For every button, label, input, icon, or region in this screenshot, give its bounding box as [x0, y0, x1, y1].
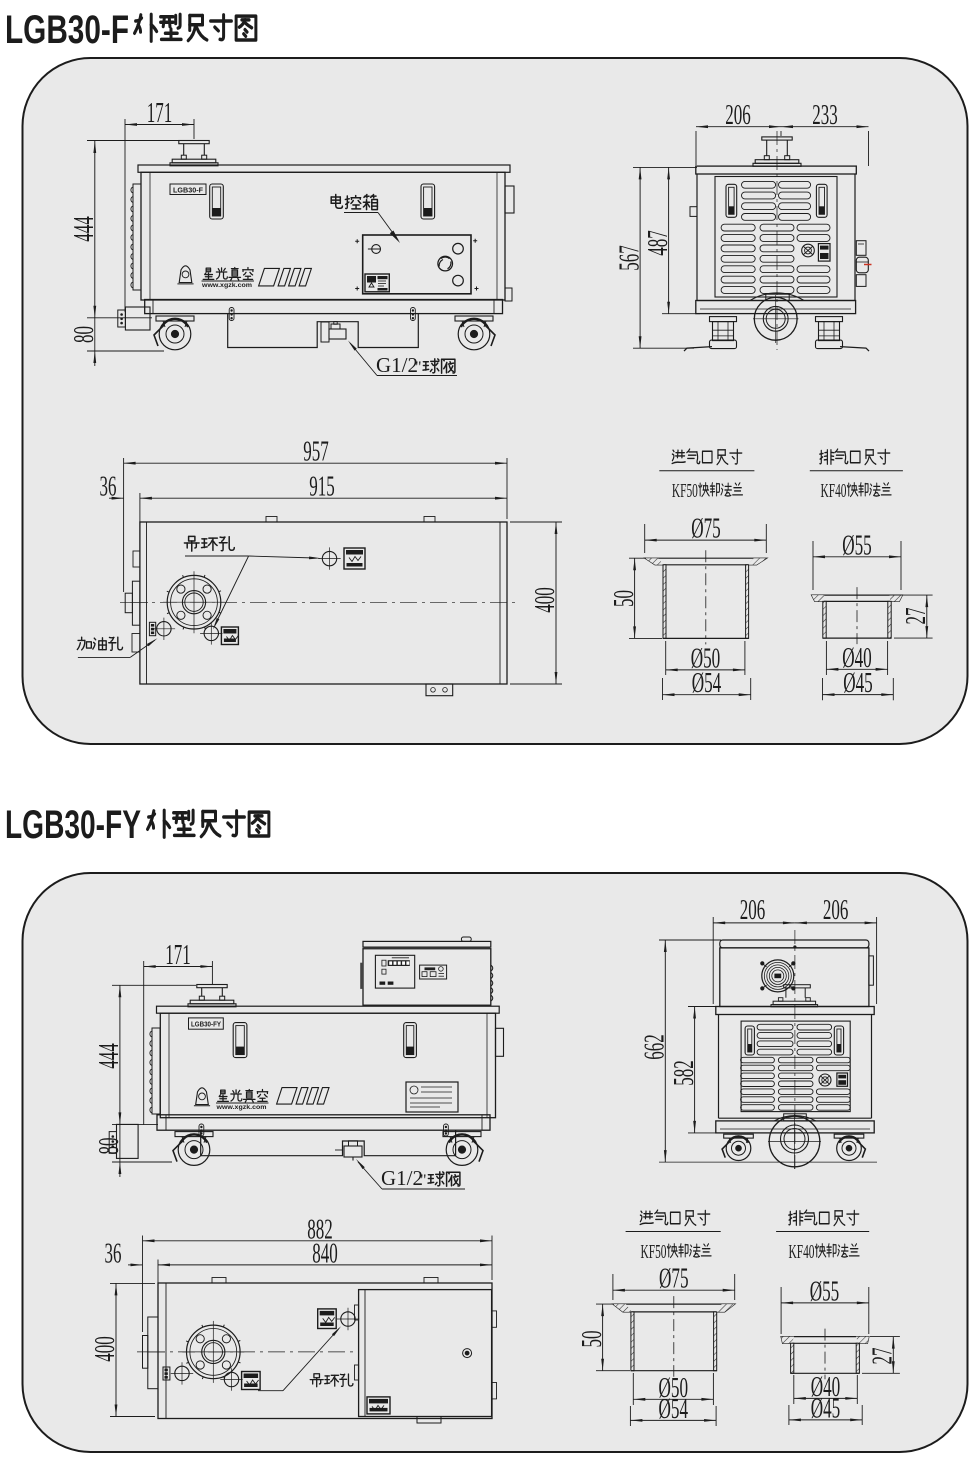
- svg-text:50: 50: [577, 1331, 608, 1348]
- svg-text:444: 444: [94, 1043, 125, 1069]
- svg-text:444: 444: [69, 216, 100, 242]
- svg-text:G1/2: G1/2: [376, 353, 418, 377]
- svg-text:50: 50: [609, 590, 640, 607]
- svg-text:80: 80: [69, 326, 100, 343]
- svg-text:36: 36: [105, 1238, 122, 1269]
- svg-text:400: 400: [90, 1336, 121, 1362]
- svg-text:27: 27: [901, 608, 932, 625]
- svg-text:": ": [420, 1172, 427, 1189]
- svg-text:G1/2: G1/2: [381, 1166, 423, 1190]
- svg-text:KF50: KF50: [641, 1241, 667, 1263]
- svg-text:": ": [415, 359, 422, 376]
- svg-text:KF50: KF50: [672, 480, 698, 502]
- svg-text:www.xgzk.com: www.xgzk.com: [201, 282, 252, 289]
- svg-text:662: 662: [640, 1034, 671, 1060]
- svg-text:582: 582: [669, 1060, 700, 1086]
- svg-text:KF40: KF40: [789, 1241, 815, 1263]
- svg-text:LGB30-FY: LGB30-FY: [191, 1022, 221, 1029]
- svg-text:LGB30-F: LGB30-F: [173, 186, 203, 195]
- svg-text:206: 206: [823, 895, 849, 926]
- svg-text:487: 487: [643, 230, 674, 256]
- svg-text:KF40: KF40: [821, 480, 847, 502]
- svg-text:LGB30-F: LGB30-F: [5, 8, 129, 52]
- svg-text:LGB30-FY: LGB30-FY: [5, 803, 141, 847]
- svg-text:206: 206: [740, 895, 766, 926]
- svg-text:80: 80: [94, 1138, 125, 1155]
- svg-text:567: 567: [614, 245, 645, 271]
- svg-text:400: 400: [530, 587, 561, 613]
- svg-text:www.xgzk.com: www.xgzk.com: [215, 1104, 266, 1111]
